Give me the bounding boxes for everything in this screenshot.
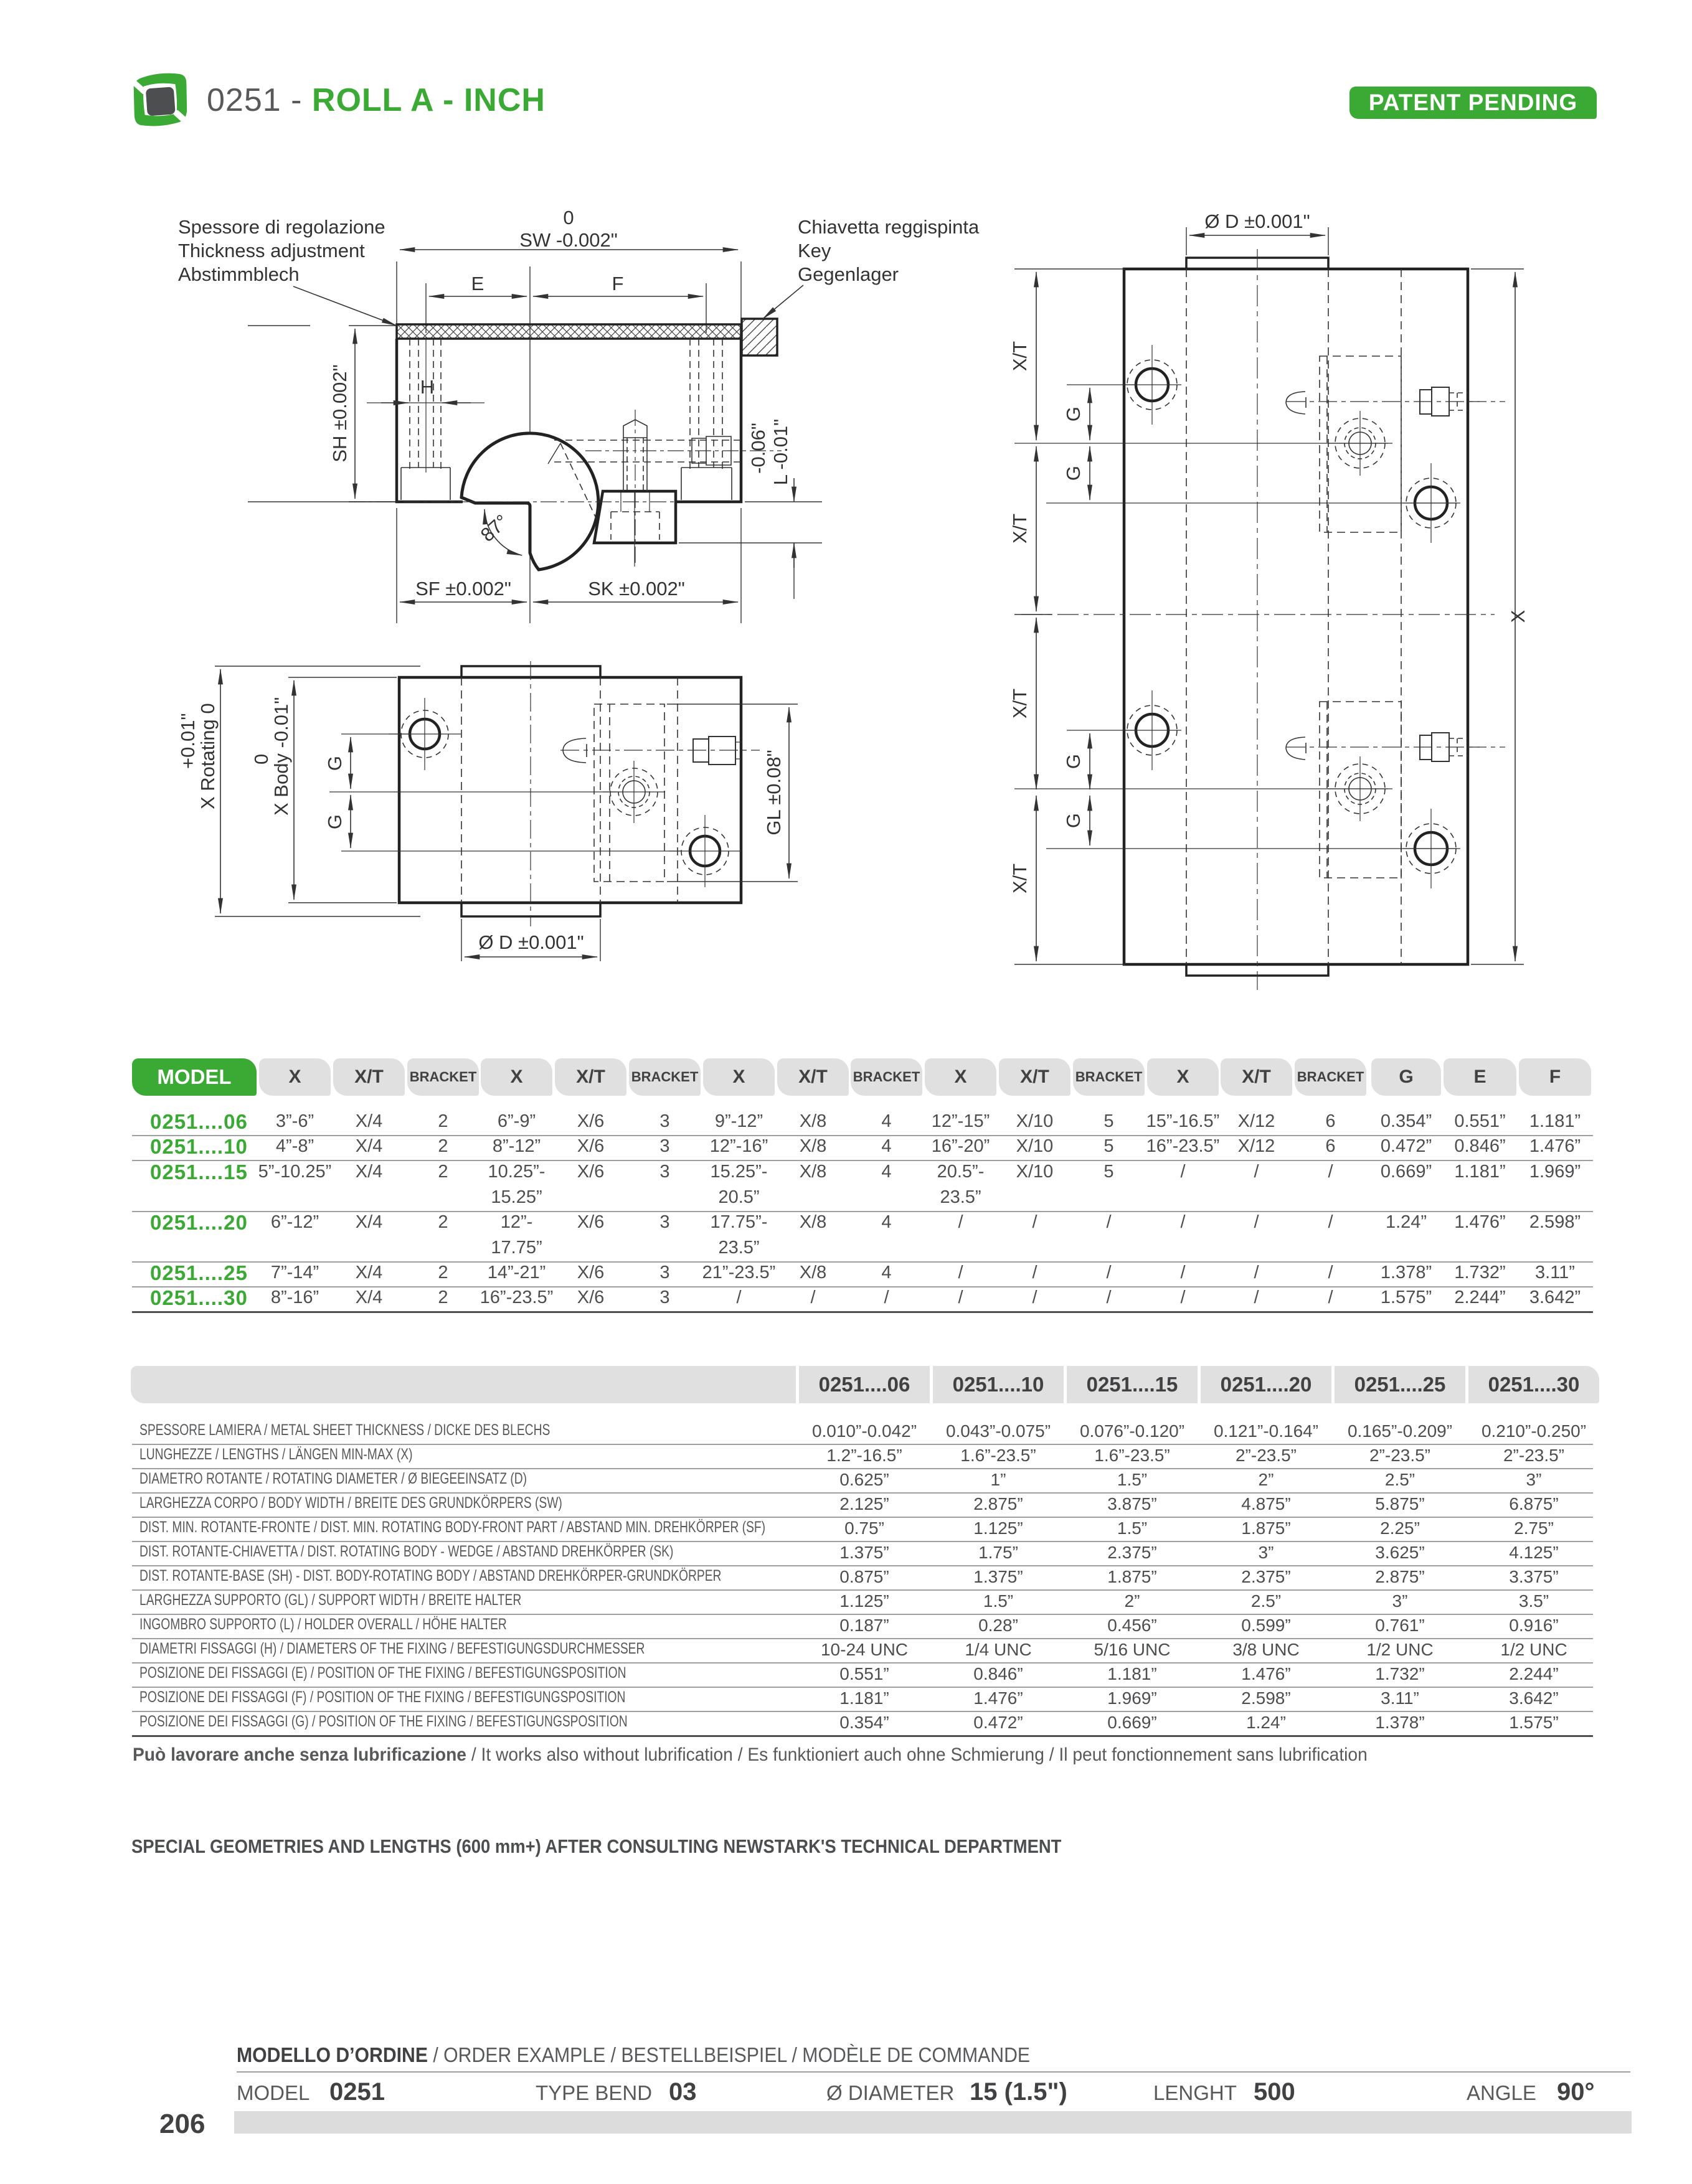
svg-text:X/T: X/T (1009, 341, 1031, 371)
svg-text:Abstimmblech: Abstimmblech (178, 263, 300, 285)
svg-text:X Rotating 0: X Rotating 0 (197, 703, 219, 809)
svg-text:SK ±0.002": SK ±0.002" (588, 578, 685, 600)
svg-text:X Body -0.01": X Body -0.01" (270, 697, 292, 816)
svg-text:+0.01": +0.01" (177, 713, 199, 769)
svg-text:Ø D ±0.001": Ø D ±0.001" (478, 931, 584, 953)
svg-text:0: 0 (563, 207, 574, 228)
svg-text:G: G (1062, 466, 1084, 481)
svg-text:87°: 87° (476, 511, 513, 546)
svg-text:Chiavetta reggispinta: Chiavetta reggispinta (798, 216, 980, 238)
svg-text:X/T: X/T (1009, 864, 1031, 893)
svg-text:X/T: X/T (1009, 514, 1031, 544)
svg-text:Ø D ±0.001": Ø D ±0.001" (1204, 210, 1310, 232)
svg-text:Thickness adjustment: Thickness adjustment (178, 240, 365, 261)
svg-text:Key: Key (798, 240, 831, 261)
svg-text:X/T: X/T (1009, 689, 1031, 718)
svg-text:SW -0.002": SW -0.002" (519, 229, 617, 251)
svg-text:X: X (1507, 610, 1529, 623)
svg-text:L -0.01": L -0.01" (770, 419, 792, 485)
svg-text:GL ±0.08": GL ±0.08" (763, 750, 785, 835)
svg-text:G: G (324, 814, 346, 829)
svg-text:Gegenlager: Gegenlager (798, 263, 899, 285)
svg-text:SH ±0.002": SH ±0.002" (329, 364, 351, 462)
svg-text:G: G (1062, 813, 1084, 828)
svg-text:H: H (420, 376, 434, 398)
svg-text:0: 0 (250, 754, 272, 765)
svg-text:E: E (471, 273, 484, 294)
svg-text:Spessore di regolazione: Spessore di regolazione (178, 216, 385, 238)
svg-text:G: G (324, 756, 346, 771)
svg-text:SF ±0.002": SF ±0.002" (415, 578, 511, 600)
svg-text:F: F (612, 273, 624, 294)
svg-text:G: G (1062, 754, 1084, 769)
svg-text:-0.06": -0.06" (747, 423, 769, 474)
svg-text:G: G (1062, 407, 1084, 421)
